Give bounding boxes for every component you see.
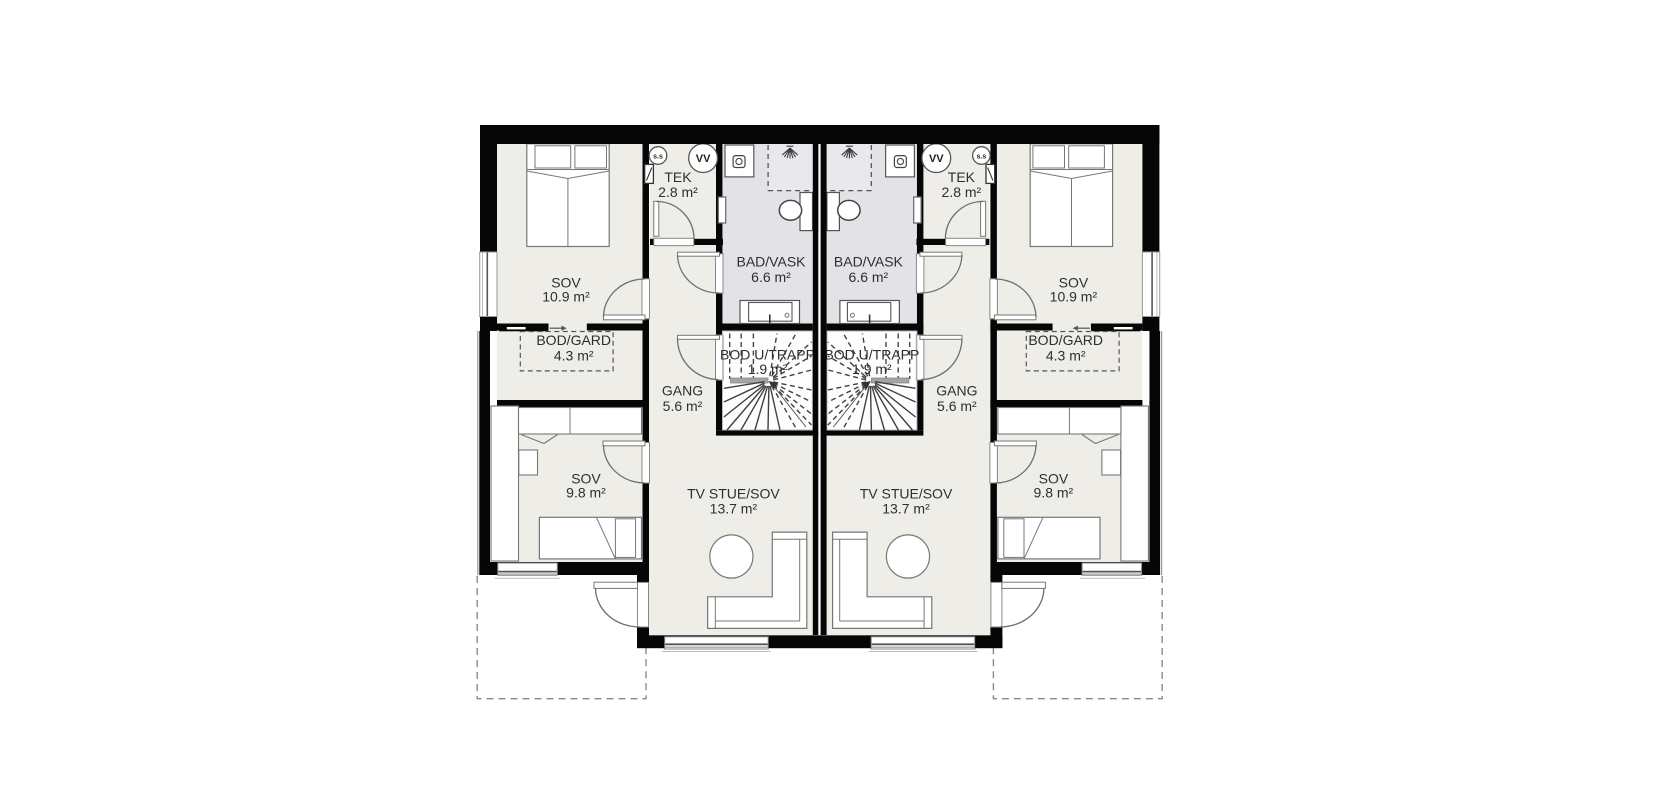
svg-text:9.8 m²: 9.8 m² bbox=[566, 484, 606, 500]
svg-text:TV STUE/SOV: TV STUE/SOV bbox=[687, 485, 780, 501]
svg-text:5.6 m²: 5.6 m² bbox=[663, 398, 703, 414]
svg-text:4.3 m²: 4.3 m² bbox=[1046, 348, 1086, 364]
svg-text:6.6 m²: 6.6 m² bbox=[751, 269, 791, 285]
svg-text:4.3 m²: 4.3 m² bbox=[554, 348, 594, 364]
svg-text:TEK: TEK bbox=[664, 169, 692, 185]
svg-text:s.s: s.s bbox=[977, 153, 987, 160]
svg-text:13.7 m²: 13.7 m² bbox=[882, 501, 930, 517]
svg-text:6.6 m²: 6.6 m² bbox=[849, 269, 889, 285]
svg-text:s.s: s.s bbox=[653, 153, 663, 160]
svg-text:1.9 m²: 1.9 m² bbox=[852, 361, 892, 377]
svg-text:TV STUE/SOV: TV STUE/SOV bbox=[860, 485, 953, 501]
svg-text:VV: VV bbox=[929, 153, 944, 165]
svg-text:9.8 m²: 9.8 m² bbox=[1034, 484, 1074, 500]
svg-text:2.8 m²: 2.8 m² bbox=[942, 184, 982, 200]
svg-text:10.9 m²: 10.9 m² bbox=[1050, 289, 1098, 305]
svg-text:5.6 m²: 5.6 m² bbox=[937, 398, 977, 414]
svg-text:GANG: GANG bbox=[662, 383, 703, 399]
svg-text:TEK: TEK bbox=[948, 169, 976, 185]
svg-text:VV: VV bbox=[696, 153, 711, 165]
svg-text:BOD/GARD: BOD/GARD bbox=[536, 332, 611, 348]
svg-text:2.8 m²: 2.8 m² bbox=[658, 184, 698, 200]
svg-text:10.9 m²: 10.9 m² bbox=[542, 289, 590, 305]
svg-text:BAD/VASK: BAD/VASK bbox=[834, 254, 904, 270]
svg-text:13.7 m²: 13.7 m² bbox=[710, 501, 758, 517]
svg-text:GANG: GANG bbox=[936, 383, 977, 399]
svg-text:BAD/VASK: BAD/VASK bbox=[737, 254, 807, 270]
svg-text:BOD/GARD: BOD/GARD bbox=[1028, 332, 1103, 348]
svg-text:1.9 m²: 1.9 m² bbox=[748, 361, 788, 377]
